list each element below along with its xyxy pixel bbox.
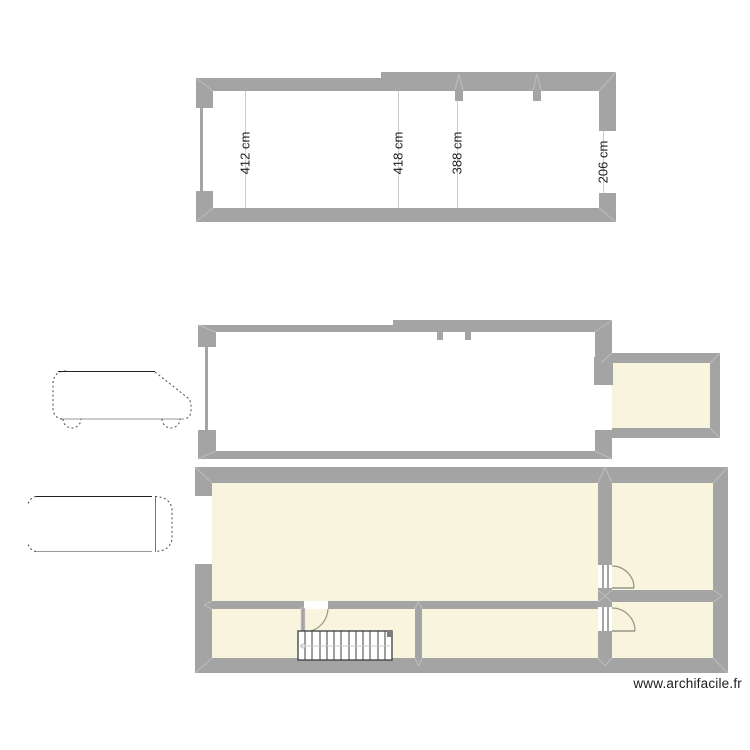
wall-segment[interactable] <box>612 590 713 602</box>
dimension-lines <box>246 91 604 208</box>
wall-segment[interactable] <box>195 467 728 483</box>
dimension-label: 418 cm <box>391 132 406 175</box>
room-area[interactable] <box>612 363 710 428</box>
van-top-view-icon[interactable] <box>28 496 172 552</box>
wall-segment[interactable] <box>415 609 422 658</box>
wall-segment[interactable] <box>212 601 598 609</box>
wall-segment[interactable] <box>196 78 213 108</box>
wall-segment[interactable] <box>710 353 720 438</box>
dimension-label: 206 cm <box>596 141 611 184</box>
wall-segment[interactable] <box>195 658 728 673</box>
wheel-arc <box>162 419 180 428</box>
wheel-arc <box>63 419 81 428</box>
dimension-label: 388 cm <box>450 132 465 175</box>
floor-plan-canvas: 412 cm 418 cm 388 cm 206 cm <box>0 0 750 750</box>
wall-opening-line[interactable] <box>205 347 208 430</box>
wall-stub[interactable] <box>437 332 443 340</box>
room-area[interactable] <box>422 609 598 658</box>
wall-segment[interactable] <box>612 428 720 438</box>
wall-stub[interactable] <box>533 91 541 101</box>
wall-stub[interactable] <box>465 332 471 340</box>
wall-segment[interactable] <box>612 353 720 363</box>
staircase-icon[interactable] <box>298 631 393 660</box>
stair-newel <box>387 631 393 637</box>
van-side-view-icon[interactable] <box>53 371 191 428</box>
room-area[interactable] <box>212 483 598 601</box>
middle-floor-plan <box>198 320 720 459</box>
dimension-label: 412 cm <box>238 132 253 175</box>
wall-segment[interactable] <box>393 320 612 332</box>
upper-floor-plan: 412 cm 418 cm 388 cm 206 cm <box>196 72 616 222</box>
wall-segment[interactable] <box>713 483 728 658</box>
wall-segment[interactable] <box>198 451 612 459</box>
window-opening-icon[interactable] <box>195 495 212 565</box>
room-area[interactable] <box>612 602 713 658</box>
wall-opening-line[interactable] <box>200 108 203 191</box>
wall-stub[interactable] <box>455 91 463 101</box>
watermark: www.archifacile.fr <box>633 676 742 691</box>
lower-floor-plan <box>195 467 728 673</box>
wall-segment[interactable] <box>196 191 213 222</box>
floor-plan-drawing: 412 cm 418 cm 388 cm 206 cm <box>0 0 750 750</box>
wall-segment[interactable] <box>207 325 393 332</box>
room-area[interactable] <box>612 483 713 590</box>
wall-segment[interactable] <box>196 78 381 91</box>
wall-segment[interactable] <box>196 208 616 222</box>
wall-segment[interactable] <box>381 72 616 91</box>
corner-miters <box>196 72 616 222</box>
